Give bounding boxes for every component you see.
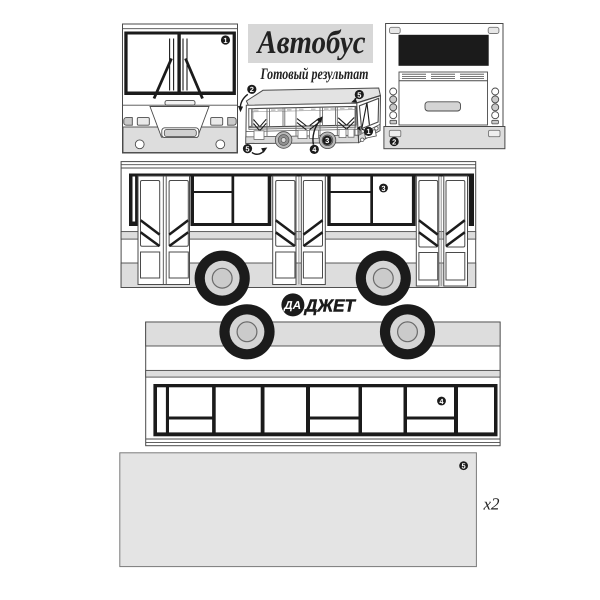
svg-text:ДА: ДА xyxy=(283,300,301,312)
svg-text:3: 3 xyxy=(325,136,329,145)
svg-text:x2: x2 xyxy=(482,495,500,514)
svg-text:ДЖЕТ: ДЖЕТ xyxy=(303,296,356,316)
svg-text:1: 1 xyxy=(366,127,370,136)
svg-text:2: 2 xyxy=(392,137,396,146)
svg-text:3: 3 xyxy=(381,184,385,193)
svg-text:5: 5 xyxy=(357,90,361,99)
svg-text:Автобус: Автобус xyxy=(256,25,366,61)
svg-text:5: 5 xyxy=(462,462,466,471)
svg-text:2: 2 xyxy=(250,85,254,94)
svg-text:1: 1 xyxy=(223,36,227,45)
svg-text:Готовый результат: Готовый результат xyxy=(260,66,369,83)
svg-text:5: 5 xyxy=(245,144,249,153)
